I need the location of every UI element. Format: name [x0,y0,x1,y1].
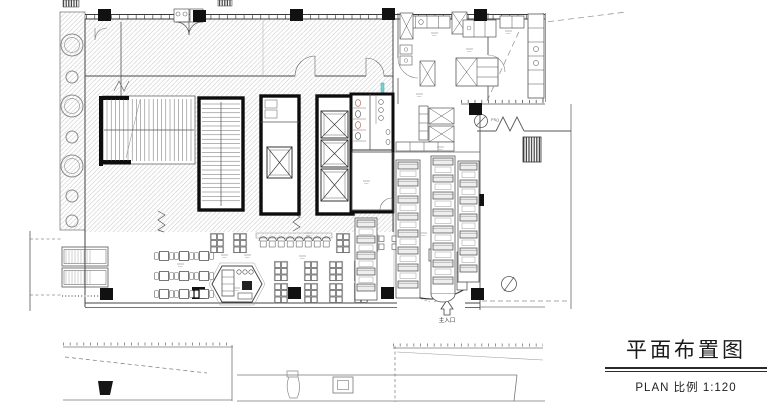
table-4seat [155,252,174,261]
table-4seat [175,272,194,281]
landscape-strip [60,12,85,230]
table-6seat [233,233,247,253]
table-6seat [336,233,350,253]
table-4seat [155,272,174,281]
service-pantry [394,106,480,152]
table-6seat [210,233,224,253]
booth-column [458,161,479,282]
folding-door [496,117,524,131]
table-4seat [195,290,214,299]
riser-label: PS() [491,117,500,122]
title-underline [605,367,767,372]
top-vent-bar-2 [218,0,232,6]
banquette-back [256,233,332,238]
kitchen [398,12,546,104]
table-6seat [304,261,318,281]
table-4seat [175,290,194,299]
floor-plan-sheet: 主入口 PS() 平面布置图 PLAN 比例 1:120 [0,0,770,406]
table-6seat [274,261,288,281]
title-block: 平面布置图 PLAN 比例 1:120 [605,334,767,395]
service-room [352,152,392,210]
booth-column [396,160,420,298]
banquette-stools [259,237,330,247]
site-column [98,381,113,395]
booth-column [431,156,455,302]
table-6seat [329,261,343,281]
service-counter [396,142,454,151]
booth-column [355,218,377,300]
elevator-shaft [321,169,348,201]
sheet-scale: PLAN 比例 1:120 [605,379,767,395]
table-4seat [175,252,194,261]
table-4seat [155,290,174,299]
sheet-title: 平面布置图 [605,334,767,364]
top-vent-bar [63,0,79,7]
site-planter-box [333,377,353,393]
elevator-shaft [321,140,348,167]
elevator-shaft [321,111,348,138]
main-entrance-label: 主入口 [439,316,456,324]
planter [523,137,541,162]
table-4seat [195,272,214,281]
table-6seat [274,283,288,303]
table-6seat [304,283,318,303]
teal-door-marker [381,83,384,94]
table-6seat [329,283,343,303]
terrace [475,104,572,310]
escalators [30,231,108,311]
elevator-shaft [267,147,292,178]
